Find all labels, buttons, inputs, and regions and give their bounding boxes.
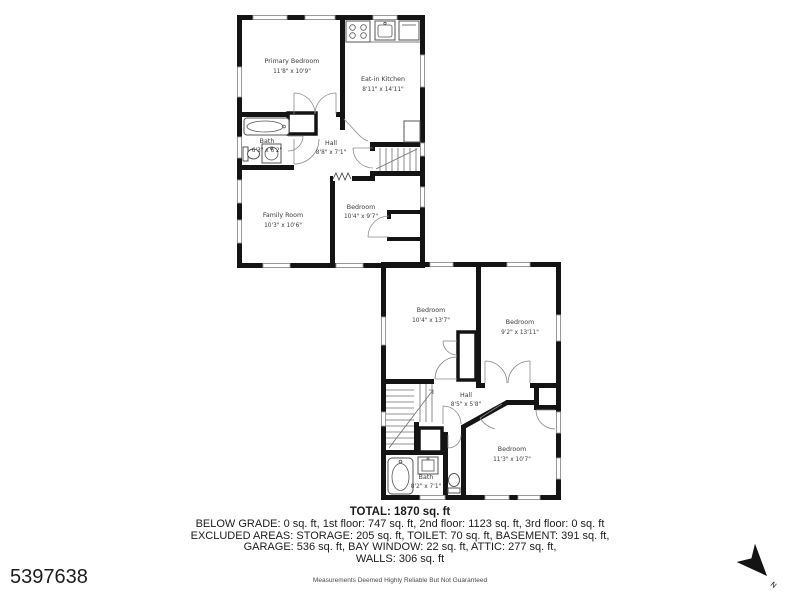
room-primary-bedroom: Primary Bedroom 11'8" x 10'9" — [265, 58, 320, 75]
refrigerator-icon — [404, 121, 420, 142]
summary-line: BELOW GRADE: 0 sq. ft, 1st floor: 747 sq… — [0, 519, 800, 531]
stove-icon — [346, 21, 370, 42]
room-dims: 9'2" x 13'11" — [501, 330, 539, 336]
north-arrow-shape — [737, 544, 767, 576]
room-family-room: Family Room 10'3" x 10'6" — [263, 212, 303, 229]
room-label: Eat-in Kitchen — [361, 76, 405, 83]
first-floor-hall-closet — [288, 113, 316, 134]
area-summary: TOTAL: 1870 sq. ft BELOW GRADE: 0 sq. ft… — [0, 506, 800, 565]
bedroom-closet — [458, 332, 476, 380]
room-dims: 6'3" x 6'2" — [252, 148, 283, 154]
room-dims: 11'8" x 10'9" — [273, 69, 311, 75]
room-label: Hall — [460, 392, 472, 399]
room-bedroom-right: Bedroom 9'2" x 13'11" — [501, 319, 539, 336]
room-label: Primary Bedroom — [265, 58, 320, 65]
floor-plan-page: Primary Bedroom 11'8" x 10'9" Eat-in Kit… — [0, 0, 800, 600]
summary-line: WALLS: 306 sq. ft — [0, 554, 800, 566]
disclaimer-text: Measurements Deemed Highly Reliable But … — [0, 577, 800, 584]
kitchen-sink-icon — [375, 21, 395, 40]
room-bedroom-bottom: Bedroom 11'3" x 10'7" — [493, 446, 531, 463]
first-floor-stairs-icon — [376, 148, 417, 171]
dishwasher-icon — [399, 21, 419, 40]
room-label: Bedroom — [347, 204, 375, 211]
room-label: Bath — [419, 474, 434, 481]
under-stair-closet — [419, 428, 442, 452]
room-dims: 10'4" x 13'7" — [412, 318, 450, 324]
room-bath-2: Bath 8'2" x 7'1" — [411, 474, 442, 490]
room-dims: 8'2" x 7'1" — [411, 484, 442, 490]
room-hall-1: Hall 8'8" x 7'1" — [316, 140, 347, 156]
second-floor-bathtub-icon — [388, 458, 413, 494]
room-eat-in-kitchen: Eat-in Kitchen 8'11" x 14'11" — [361, 76, 405, 93]
room-dims: 10'3" x 10'6" — [264, 223, 302, 229]
room-label: Family Room — [263, 212, 303, 219]
compass-north-icon: N — [731, 538, 783, 599]
second-floor-toilet-icon — [448, 474, 460, 494]
second-floor-plan: Bedroom 10'4" x 13'7" Bedroom 9'2" x 13'… — [381, 262, 561, 500]
room-dims: 11'3" x 10'7" — [493, 457, 531, 463]
north-label: N — [769, 580, 778, 590]
room-label: Bedroom — [506, 319, 534, 326]
room-label: Bath — [260, 138, 275, 145]
room-dims: 8'5" x 5'8" — [451, 402, 482, 408]
room-label: Hall — [325, 140, 337, 147]
listing-id: 5397638 — [10, 566, 88, 589]
room-bedroom-f1: Bedroom 10'4" x 9'7" — [344, 204, 378, 220]
room-dims: 8'11" x 14'11" — [362, 87, 404, 93]
open-passage-marker — [333, 173, 352, 181]
second-floor-sink-icon — [418, 457, 438, 474]
room-hall-2: Hall 8'5" x 5'8" — [451, 392, 482, 408]
first-floor-bathtub-icon — [244, 118, 289, 135]
room-label: Bedroom — [417, 307, 445, 314]
room-label: Bedroom — [498, 446, 526, 453]
first-floor-plan: Primary Bedroom 11'8" x 10'9" Eat-in Kit… — [237, 15, 425, 268]
room-dims: 10'4" x 9'7" — [344, 214, 378, 220]
room-dims: 8'8" x 7'1" — [316, 150, 347, 156]
room-bedroom-left: Bedroom 10'4" x 13'7" — [412, 307, 450, 324]
